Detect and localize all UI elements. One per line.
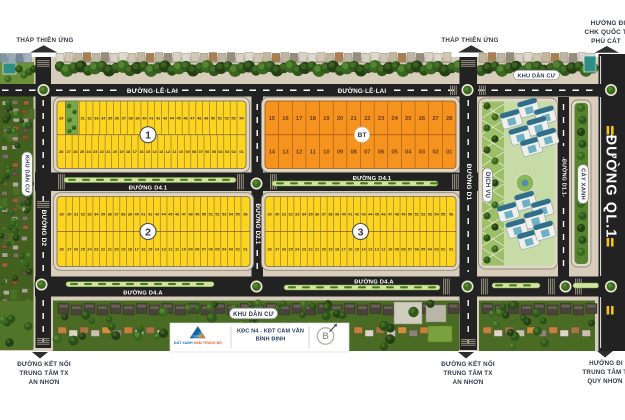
svg-text:07: 07 xyxy=(199,149,203,154)
svg-text:23: 23 xyxy=(378,116,385,122)
svg-text:20: 20 xyxy=(113,149,117,154)
svg-text:10: 10 xyxy=(182,246,186,251)
svg-text:07: 07 xyxy=(364,150,370,156)
svg-text:27: 27 xyxy=(67,149,71,154)
svg-text:THÁP THIÊN ỨNG: THÁP THIÊN ỨNG xyxy=(16,36,73,44)
svg-text:BÌNH ĐỊNH: BÌNH ĐỊNH xyxy=(256,334,286,342)
svg-text:PHÙ CÁT: PHÙ CÁT xyxy=(591,36,621,45)
svg-text:27: 27 xyxy=(432,116,438,122)
svg-text:AN NHƠN: AN NHƠN xyxy=(29,379,60,386)
svg-text:-ĐƯỜNG D1.1-: -ĐƯỜNG D1.1- xyxy=(560,157,568,197)
svg-text:08: 08 xyxy=(350,150,357,156)
svg-text:B: B xyxy=(322,331,329,341)
svg-text:24: 24 xyxy=(391,116,398,122)
svg-text:01: 01 xyxy=(446,150,453,156)
svg-text:ĐƯỜNG D4.1: ĐƯỜNG D4.1 xyxy=(353,174,392,182)
svg-text:HƯỚNG ĐI: HƯỚNG ĐI xyxy=(589,359,623,367)
svg-text:11: 11 xyxy=(310,150,317,156)
svg-text:50: 50 xyxy=(211,115,215,120)
svg-text:KĐC N4 - KĐT CẨM VĂN: KĐC N4 - KĐT CẨM VĂN xyxy=(237,327,304,334)
svg-text:ĐƯỜNG D2.1: ĐƯỜNG D2.1 xyxy=(254,204,262,245)
svg-text:27: 27 xyxy=(67,246,71,251)
svg-text:DỊCH VỤ: DỊCH VỤ xyxy=(484,172,490,198)
svg-text:21: 21 xyxy=(350,116,357,122)
svg-text:17: 17 xyxy=(133,149,137,154)
svg-text:CÂY XANH: CÂY XANH xyxy=(580,168,587,200)
svg-text:QUY NHƠN: QUY NHƠN xyxy=(587,378,623,385)
svg-text:ĐƯỜNG·LÊ·LAI: ĐƯỜNG·LÊ·LAI xyxy=(127,86,178,95)
svg-text:47: 47 xyxy=(388,211,392,216)
svg-text:ĐƯỜNG D4.1: ĐƯỜNG D4.1 xyxy=(129,184,168,192)
svg-text:KHU DÂN CƯ: KHU DÂN CƯ xyxy=(233,311,274,318)
svg-text:19: 19 xyxy=(323,116,330,122)
svg-text:20: 20 xyxy=(322,246,326,251)
svg-text:05: 05 xyxy=(391,150,398,156)
svg-text:ĐƯỜNG D4.A: ĐƯỜNG D4.A xyxy=(354,278,394,286)
svg-text:03: 03 xyxy=(419,150,426,156)
svg-text:47: 47 xyxy=(190,115,194,120)
svg-text:20: 20 xyxy=(337,116,343,122)
svg-text:09: 09 xyxy=(337,150,344,156)
svg-text:26: 26 xyxy=(419,116,426,122)
svg-text:40: 40 xyxy=(135,211,139,216)
svg-text:KHU DÂN CƯ: KHU DÂN CƯ xyxy=(24,155,31,193)
svg-text:ĐƯỜNG·LÊ·LAI: ĐƯỜNG·LÊ·LAI xyxy=(338,87,387,95)
svg-text:ĐƯỜNG D4.A: ĐƯỜNG D4.A xyxy=(123,289,163,297)
svg-text:30: 30 xyxy=(275,211,279,216)
svg-text:13: 13 xyxy=(282,150,289,156)
svg-text:07: 07 xyxy=(202,246,206,251)
svg-text:22: 22 xyxy=(364,116,370,122)
svg-text:-: - xyxy=(129,88,131,94)
svg-text:07: 07 xyxy=(408,246,412,251)
svg-text:47: 47 xyxy=(182,211,186,216)
svg-text:17: 17 xyxy=(135,246,139,251)
svg-text:-: - xyxy=(175,88,177,94)
svg-text:18: 18 xyxy=(310,116,317,122)
svg-text:37: 37 xyxy=(114,211,118,216)
svg-text:30: 30 xyxy=(67,211,71,216)
svg-text:2: 2 xyxy=(145,226,151,238)
svg-text:14: 14 xyxy=(269,150,276,156)
svg-text:12: 12 xyxy=(296,150,302,156)
svg-text:10: 10 xyxy=(388,246,392,251)
svg-text:04: 04 xyxy=(405,150,412,156)
svg-text:TRUNG TÂM TX: TRUNG TÂM TX xyxy=(19,370,69,377)
svg-text:1: 1 xyxy=(145,129,151,141)
svg-text:28: 28 xyxy=(446,116,453,122)
svg-text:BT: BT xyxy=(357,132,367,139)
svg-text:ĐƯỜNG D1: ĐƯỜNG D1 xyxy=(465,164,474,201)
svg-text:06: 06 xyxy=(378,150,385,156)
svg-text:TRUNG TÂM TX: TRUNG TÂM TX xyxy=(443,370,493,377)
svg-text:27: 27 xyxy=(275,246,279,251)
svg-text:ĐƯỜNG KẾT NỐI: ĐƯỜNG KẾT NỐI xyxy=(441,360,495,368)
svg-text:HƯỚNG ĐI: HƯỚNG ĐI xyxy=(591,18,625,27)
svg-text:50: 50 xyxy=(408,211,412,216)
svg-text:40: 40 xyxy=(142,115,146,120)
svg-text:10: 10 xyxy=(323,150,329,156)
svg-text:ĐƯỜNG QL.1: ĐƯỜNG QL.1 xyxy=(603,135,621,239)
svg-text:15: 15 xyxy=(269,116,276,122)
svg-text:50: 50 xyxy=(202,211,206,216)
svg-text:ĐƯỜNG KẾT NỐI: ĐƯỜNG KẾT NỐI xyxy=(17,360,71,368)
svg-text:20: 20 xyxy=(114,246,118,251)
svg-text:17: 17 xyxy=(296,116,302,122)
svg-text:37: 37 xyxy=(122,115,126,120)
svg-text:37: 37 xyxy=(322,211,326,216)
svg-text:3: 3 xyxy=(358,226,364,238)
svg-text:TRUNG TÂM TP: TRUNG TÂM TP xyxy=(582,369,625,376)
svg-text:ĐẤT XANH NAM TRUNG BỘ: ĐẤT XANH NAM TRUNG BỘ xyxy=(174,340,222,345)
svg-text:40: 40 xyxy=(341,211,345,216)
svg-text:25: 25 xyxy=(405,116,412,122)
svg-text:02: 02 xyxy=(432,150,438,156)
svg-text:THÁP THIÊN ỨNG: THÁP THIÊN ỨNG xyxy=(441,36,498,44)
svg-text:16: 16 xyxy=(282,116,289,122)
svg-text:17: 17 xyxy=(341,246,345,251)
svg-text:ĐƯỜNG D2: ĐƯỜNG D2 xyxy=(40,210,49,247)
svg-text:KHU DÂN CƯ: KHU DÂN CƯ xyxy=(517,72,555,79)
svg-text:10: 10 xyxy=(179,149,183,154)
svg-text:AN NHƠN: AN NHƠN xyxy=(453,379,484,386)
